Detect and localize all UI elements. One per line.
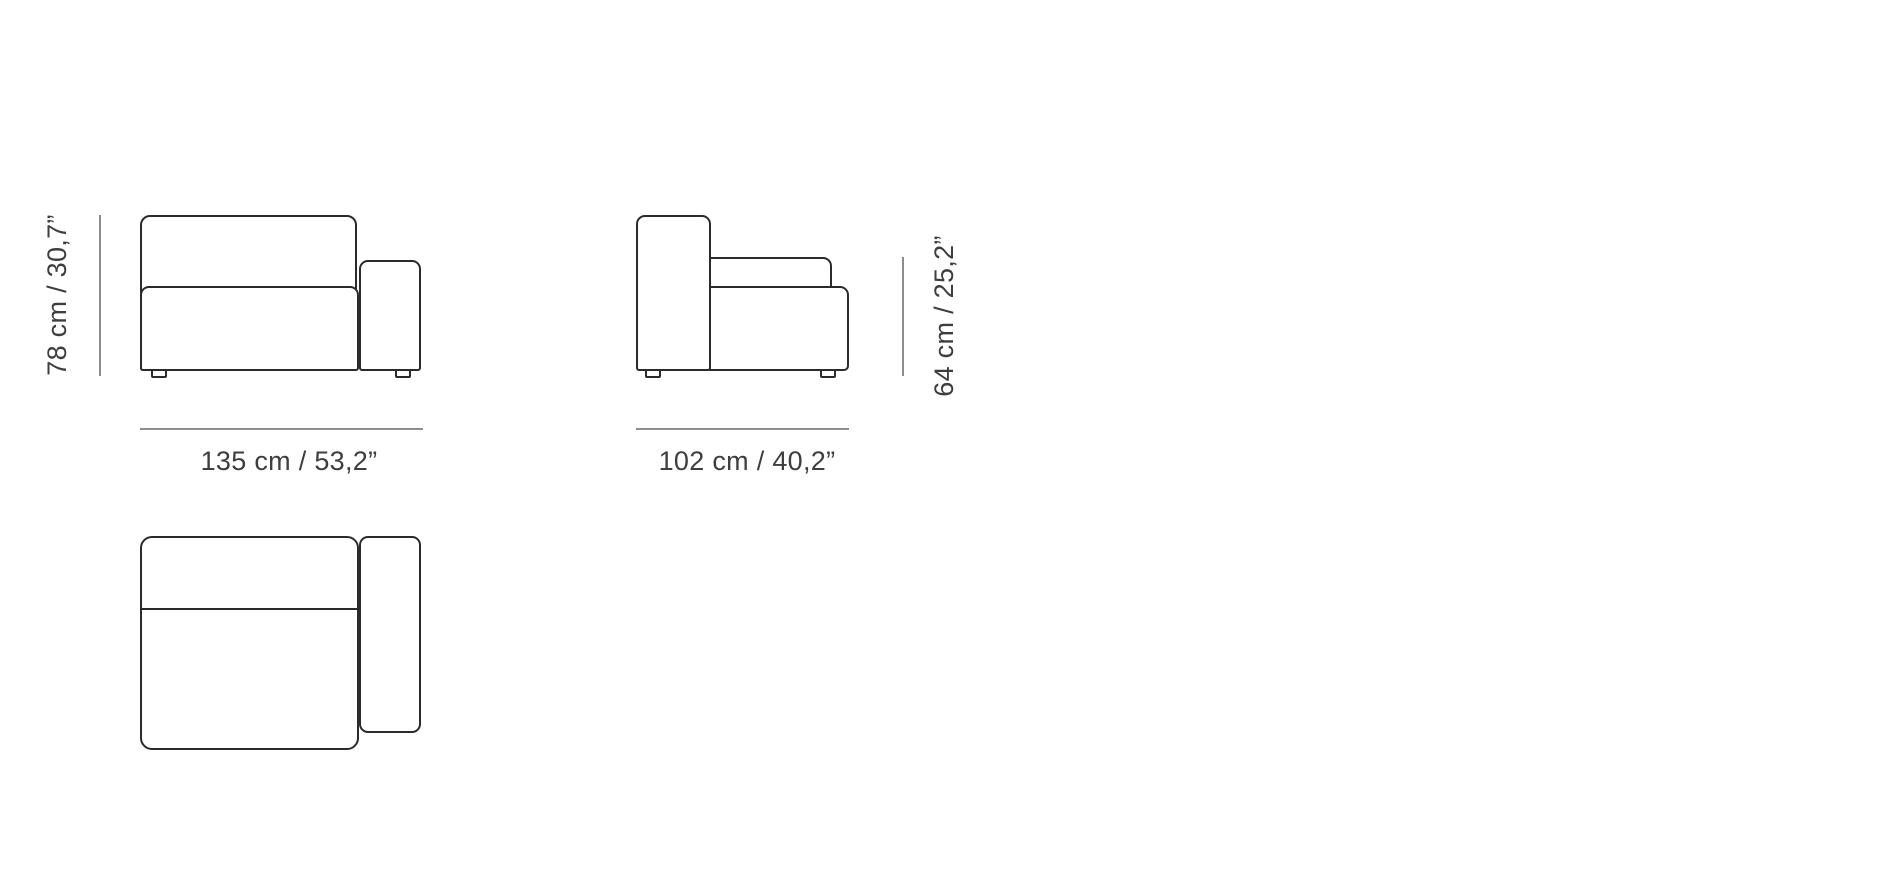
top-body-outline: [140, 536, 359, 750]
product-dimension-diagram: 78 cm / 30,7” 135 cm / 53,2” 102 cm / 40…: [0, 0, 1890, 886]
top-backrest-divider-line: [141, 608, 357, 610]
top-armrest-outline: [359, 536, 421, 733]
top-view: [0, 0, 1890, 886]
